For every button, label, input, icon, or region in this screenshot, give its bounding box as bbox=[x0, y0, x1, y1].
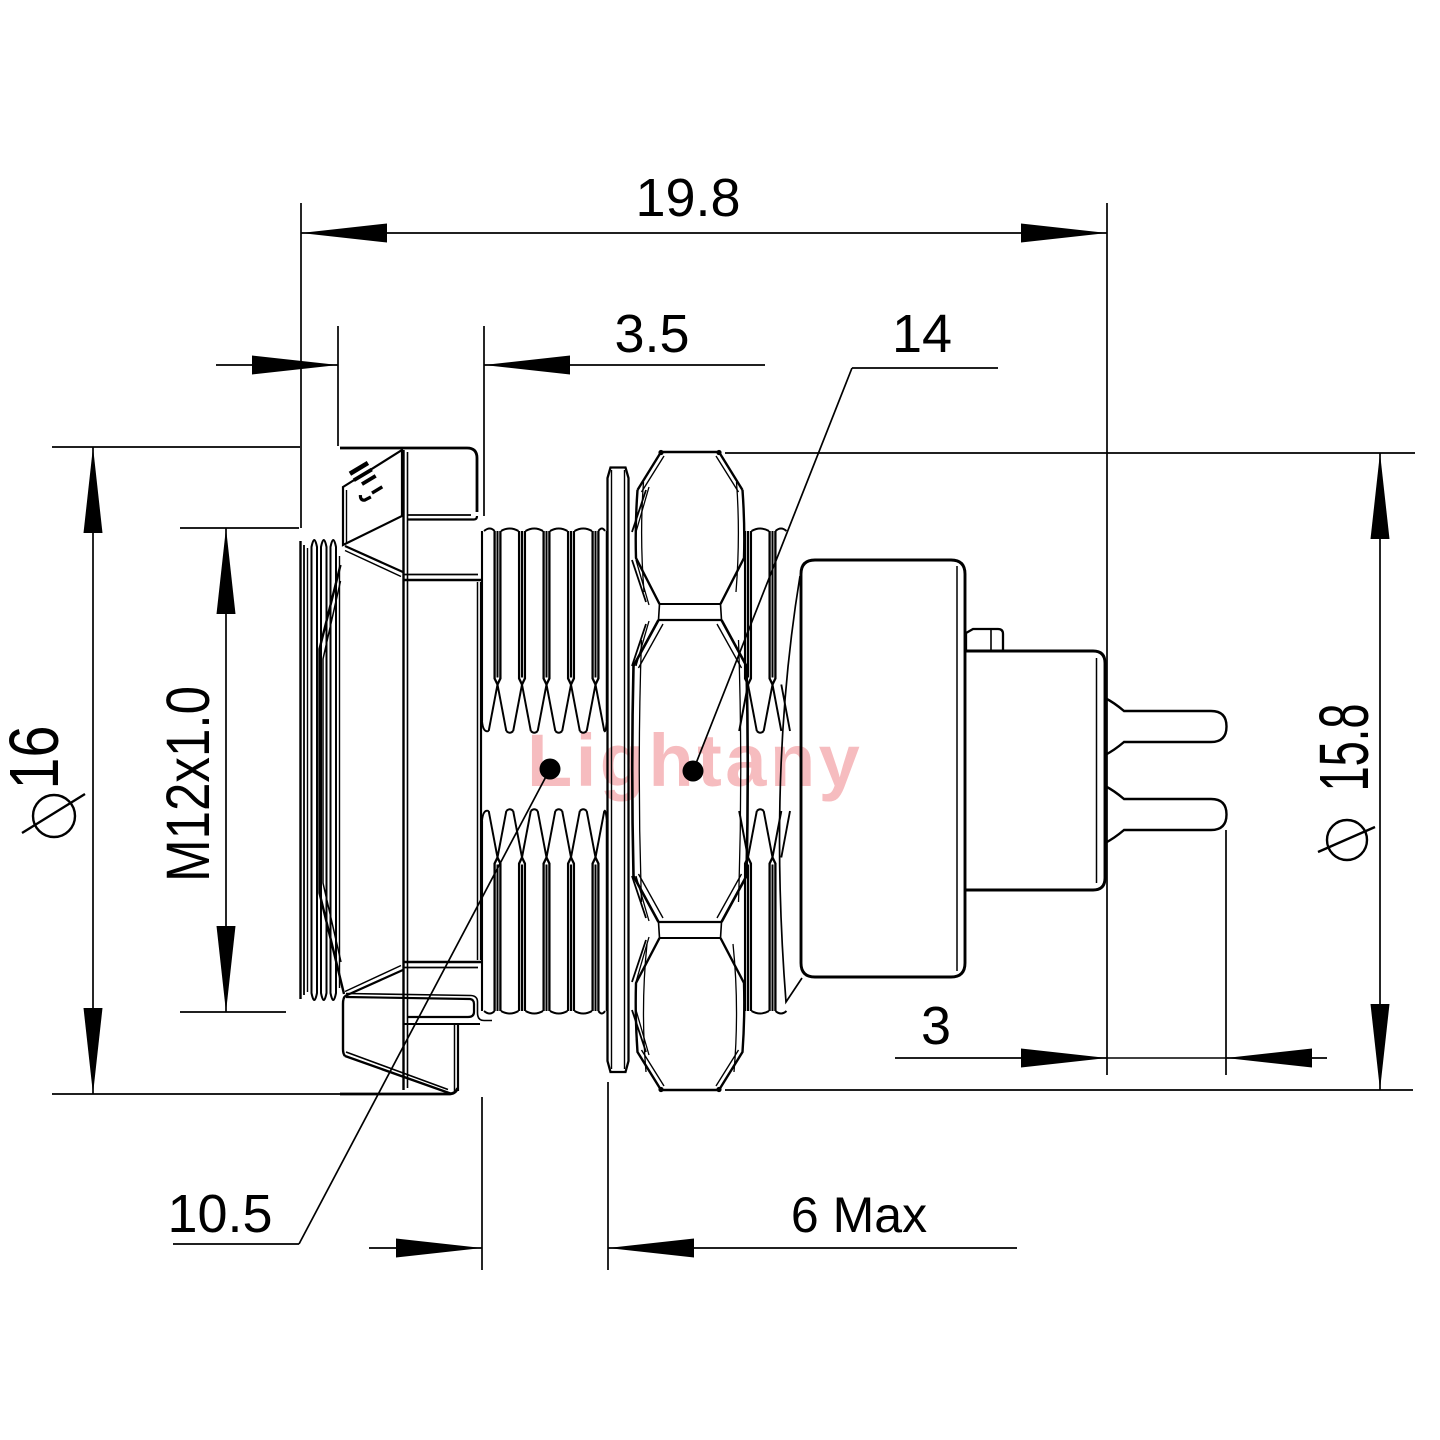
svg-text:Lightany: Lightany bbox=[527, 719, 863, 802]
svg-text:3.5: 3.5 bbox=[614, 304, 689, 364]
svg-text:16: 16 bbox=[0, 726, 73, 790]
svg-text:10.5: 10.5 bbox=[167, 1184, 272, 1244]
svg-text:15.8: 15.8 bbox=[1305, 704, 1383, 792]
svg-text:6 Max: 6 Max bbox=[791, 1187, 927, 1243]
svg-text:19.8: 19.8 bbox=[635, 168, 740, 228]
svg-text:14: 14 bbox=[892, 304, 952, 364]
svg-text:M12x1.0: M12x1.0 bbox=[154, 686, 222, 882]
svg-text:3: 3 bbox=[921, 996, 951, 1056]
